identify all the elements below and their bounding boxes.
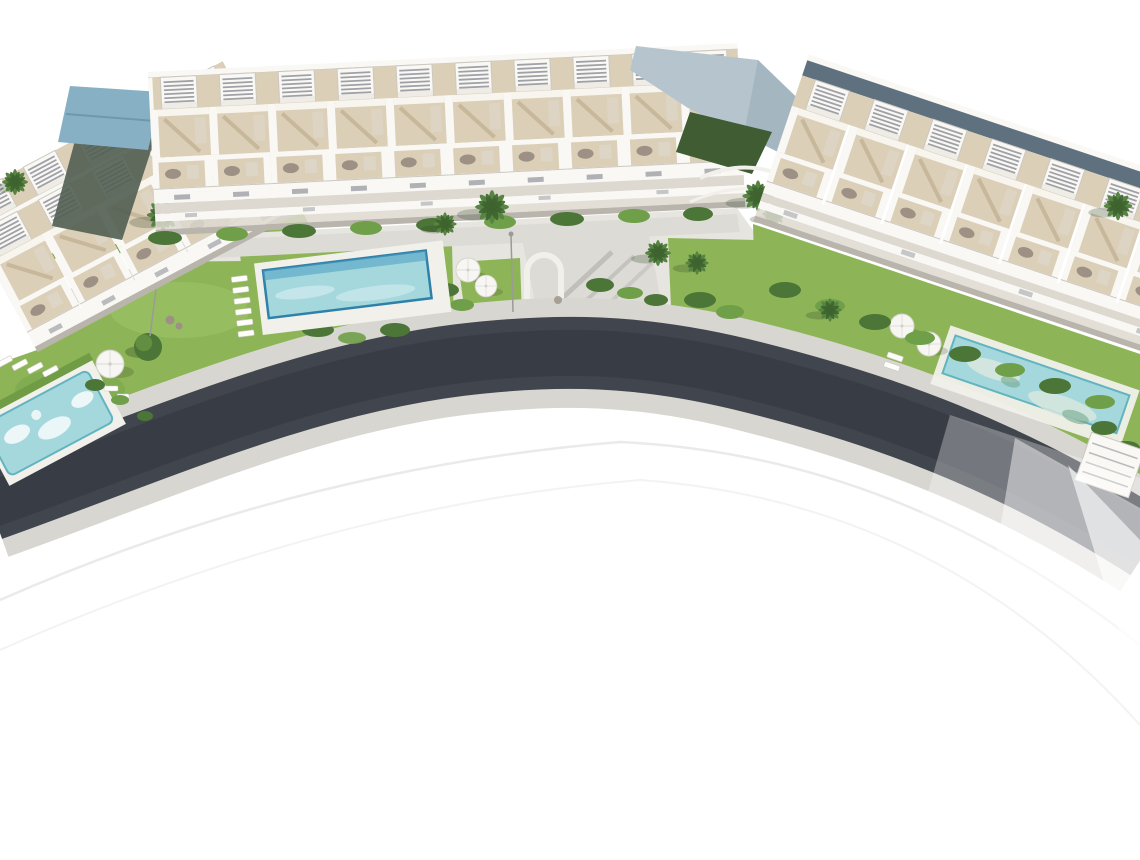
garden-furniture (176, 323, 183, 330)
entrance-parasol (456, 258, 480, 282)
round-bush (134, 333, 162, 361)
garden-table (104, 386, 118, 391)
lamp-head (509, 232, 514, 237)
entrance-parasol (475, 275, 497, 297)
architectural-render (0, 0, 1140, 860)
left-garden-parasol (96, 350, 124, 378)
garden-furniture (166, 316, 175, 325)
garden-furniture (554, 296, 562, 304)
